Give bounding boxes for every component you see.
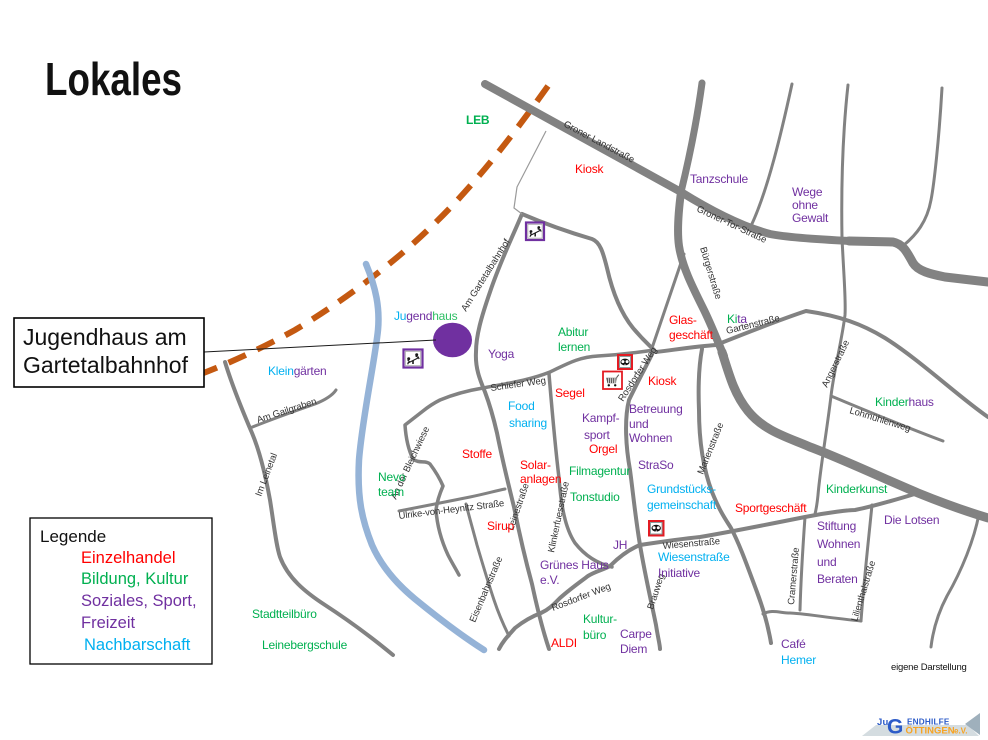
svg-text:Lokales: Lokales — [45, 53, 182, 105]
svg-text:büro: büro — [583, 628, 607, 642]
svg-text:Tonstudio: Tonstudio — [570, 490, 620, 504]
svg-text:Jugendhaus am: Jugendhaus am — [23, 324, 187, 350]
svg-text:ohne: ohne — [792, 198, 818, 212]
svg-text:e.V.: e.V. — [540, 573, 559, 587]
svg-text:geschäft: geschäft — [669, 328, 714, 342]
svg-text:anlagen: anlagen — [520, 472, 561, 486]
svg-text:Hemer: Hemer — [781, 653, 816, 667]
svg-text:lernen: lernen — [558, 340, 590, 354]
svg-text:Gewalt: Gewalt — [792, 211, 829, 225]
svg-text:ALDI: ALDI — [551, 636, 577, 650]
svg-text:Grünes Haus: Grünes Haus — [540, 558, 609, 572]
svg-text:Glas-: Glas- — [669, 313, 697, 327]
svg-text:Wohnen: Wohnen — [629, 431, 672, 445]
svg-text:Café: Café — [781, 637, 806, 651]
svg-text:Soziales, Sport,: Soziales, Sport, — [81, 592, 197, 610]
svg-text:Kampf-: Kampf- — [582, 411, 620, 425]
svg-text:Stadtteilbüro: Stadtteilbüro — [252, 607, 317, 621]
svg-text:Sportgeschäft: Sportgeschäft — [735, 501, 807, 515]
svg-text:Wohnen: Wohnen — [817, 537, 860, 551]
svg-text:Kiosk: Kiosk — [648, 374, 678, 388]
svg-text:Solar-: Solar- — [520, 458, 551, 472]
svg-text:und: und — [817, 555, 836, 569]
svg-text:Sirup: Sirup — [487, 519, 515, 533]
svg-text:ÖTTINGEN: ÖTTINGEN — [906, 726, 955, 737]
svg-text:Orgel: Orgel — [589, 442, 617, 456]
svg-text:Beraten: Beraten — [817, 572, 858, 586]
svg-text:Food: Food — [508, 399, 535, 413]
svg-text:Stoffe: Stoffe — [462, 447, 492, 461]
svg-text:JH: JH — [613, 538, 627, 552]
svg-text:Nachbarschaft: Nachbarschaft — [84, 636, 191, 654]
svg-text:Grundstücks-: Grundstücks- — [647, 482, 716, 496]
svg-text:Leinebergschule: Leinebergschule — [262, 638, 348, 652]
svg-text:Freizeit: Freizeit — [81, 614, 136, 632]
svg-text:Wiesenstraße: Wiesenstraße — [658, 550, 730, 564]
svg-text:StraSo: StraSo — [638, 458, 674, 472]
svg-text:team: team — [378, 485, 404, 499]
svg-text:LEB: LEB — [466, 113, 490, 127]
svg-text:G: G — [887, 716, 903, 739]
svg-text:Kiosk: Kiosk — [575, 162, 605, 176]
svg-text:Abitur: Abitur — [558, 325, 588, 339]
svg-text:Legende: Legende — [40, 527, 106, 546]
svg-text:Filmagentur: Filmagentur — [569, 464, 630, 478]
svg-text:Einzelhandel: Einzelhandel — [81, 549, 176, 567]
svg-text:Initiative: Initiative — [658, 566, 701, 580]
svg-text:Nevo: Nevo — [378, 470, 406, 484]
svg-text:Tanzschule: Tanzschule — [690, 172, 749, 186]
svg-text:Kinderhaus: Kinderhaus — [875, 395, 934, 409]
svg-text:Kinderkunst: Kinderkunst — [826, 482, 888, 496]
svg-text:gemeinschaft: gemeinschaft — [647, 498, 717, 512]
svg-text:und: und — [629, 417, 648, 431]
svg-text:Segel: Segel — [555, 386, 585, 400]
svg-text:Jugendhaus: Jugendhaus — [394, 309, 458, 323]
svg-text:Yoga: Yoga — [488, 347, 515, 361]
svg-text:Kleingärten: Kleingärten — [268, 364, 327, 378]
svg-text:e.V.: e.V. — [954, 727, 968, 736]
svg-text:sharing: sharing — [509, 416, 547, 430]
svg-text:Bildung, Kultur: Bildung, Kultur — [81, 570, 189, 588]
svg-text:Kita: Kita — [727, 312, 747, 326]
svg-text:Betreuung: Betreuung — [629, 402, 683, 416]
svg-text:eigene Darstellung: eigene Darstellung — [891, 662, 967, 673]
svg-text:Kultur-: Kultur- — [583, 612, 617, 626]
svg-text:Carpe: Carpe — [620, 627, 652, 641]
svg-text:Wege: Wege — [792, 185, 823, 199]
svg-text:Die Lotsen: Die Lotsen — [884, 513, 939, 527]
svg-text:Gartetalbahnhof: Gartetalbahnhof — [23, 352, 189, 378]
svg-text:Diem: Diem — [620, 642, 647, 656]
svg-text:Stiftung: Stiftung — [817, 519, 856, 533]
svg-text:sport: sport — [584, 428, 611, 442]
